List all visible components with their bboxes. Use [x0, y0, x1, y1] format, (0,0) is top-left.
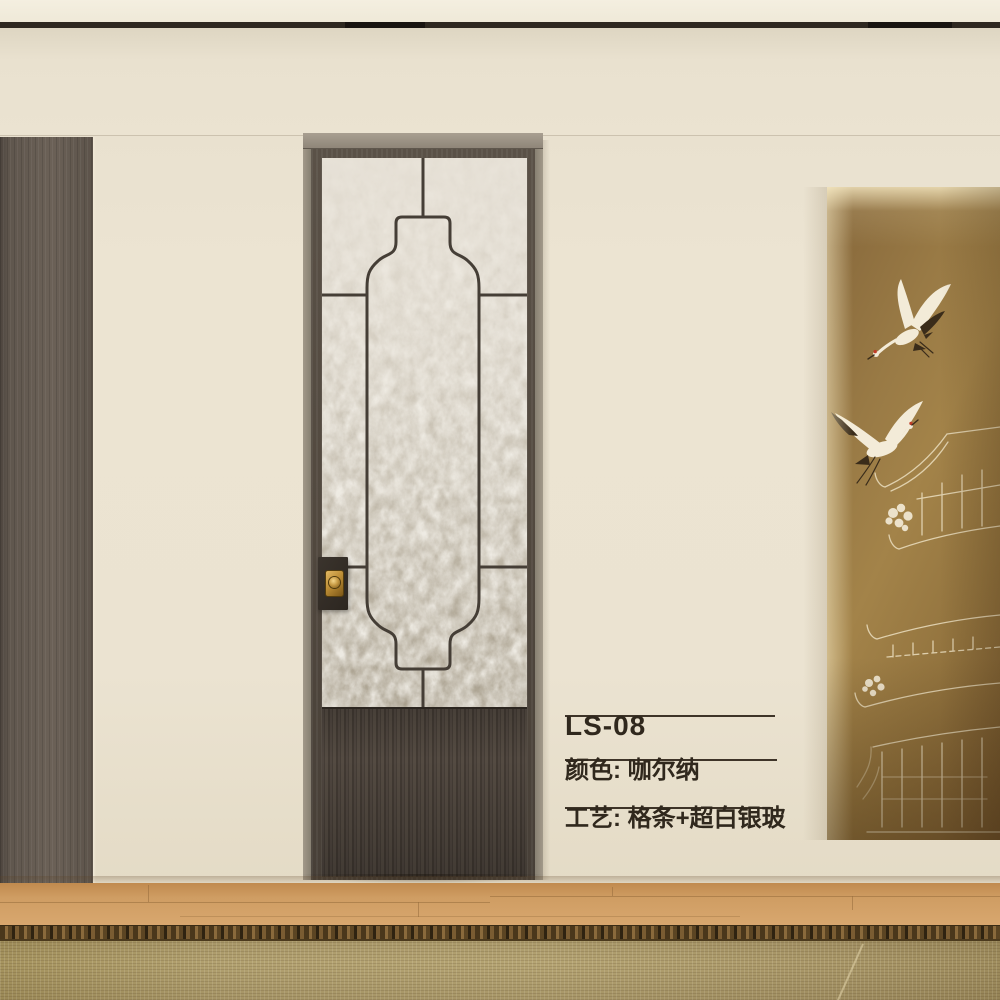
floor-plank-joint [418, 902, 419, 917]
ceiling [0, 0, 1000, 22]
door-handle [318, 557, 348, 610]
wood-floor [0, 883, 1000, 925]
product-craft-spec: 工艺: 格条+超白银玻 [565, 798, 773, 809]
rug-border-band [0, 925, 1000, 941]
floor-plank-seam [0, 902, 490, 903]
pocket-door [303, 133, 543, 880]
floor-plank-joint [852, 896, 853, 910]
door-casing-right [535, 149, 543, 880]
door-lower-wood-panel [322, 707, 527, 877]
interior-product-photo: LS-08 颜色: 咖尔纳 工艺: 格条+超白银玻 [0, 0, 1000, 1000]
color-text: 颜色: 咖尔纳 [565, 750, 700, 785]
door-cast-shadow [543, 140, 550, 880]
door-casing-left [303, 149, 311, 880]
door-casing-top [303, 133, 543, 149]
product-color-spec: 颜色: 咖尔纳 [565, 750, 777, 761]
brass-flush-pull-icon [325, 570, 344, 597]
mural-niche [827, 187, 1000, 840]
floor-plank-seam [180, 916, 740, 917]
door-glass-panel [322, 158, 527, 707]
floor-plank-seam [490, 896, 1000, 897]
wood-panel-left [0, 137, 93, 883]
craft-text: 工艺: 格条+超白银玻 [565, 798, 786, 833]
niche-wall-shadow [803, 187, 827, 840]
product-model: LS-08 [565, 710, 775, 717]
niche-vignette [827, 187, 1000, 840]
floor-plank-joint [148, 885, 149, 902]
floor-plank-joint [612, 887, 613, 896]
glass-texture-and-grid [322, 158, 527, 707]
model-text: LS-08 [565, 710, 646, 742]
ceiling-bulkhead [0, 28, 1000, 135]
wood-panel-edge-highlight [93, 137, 96, 883]
